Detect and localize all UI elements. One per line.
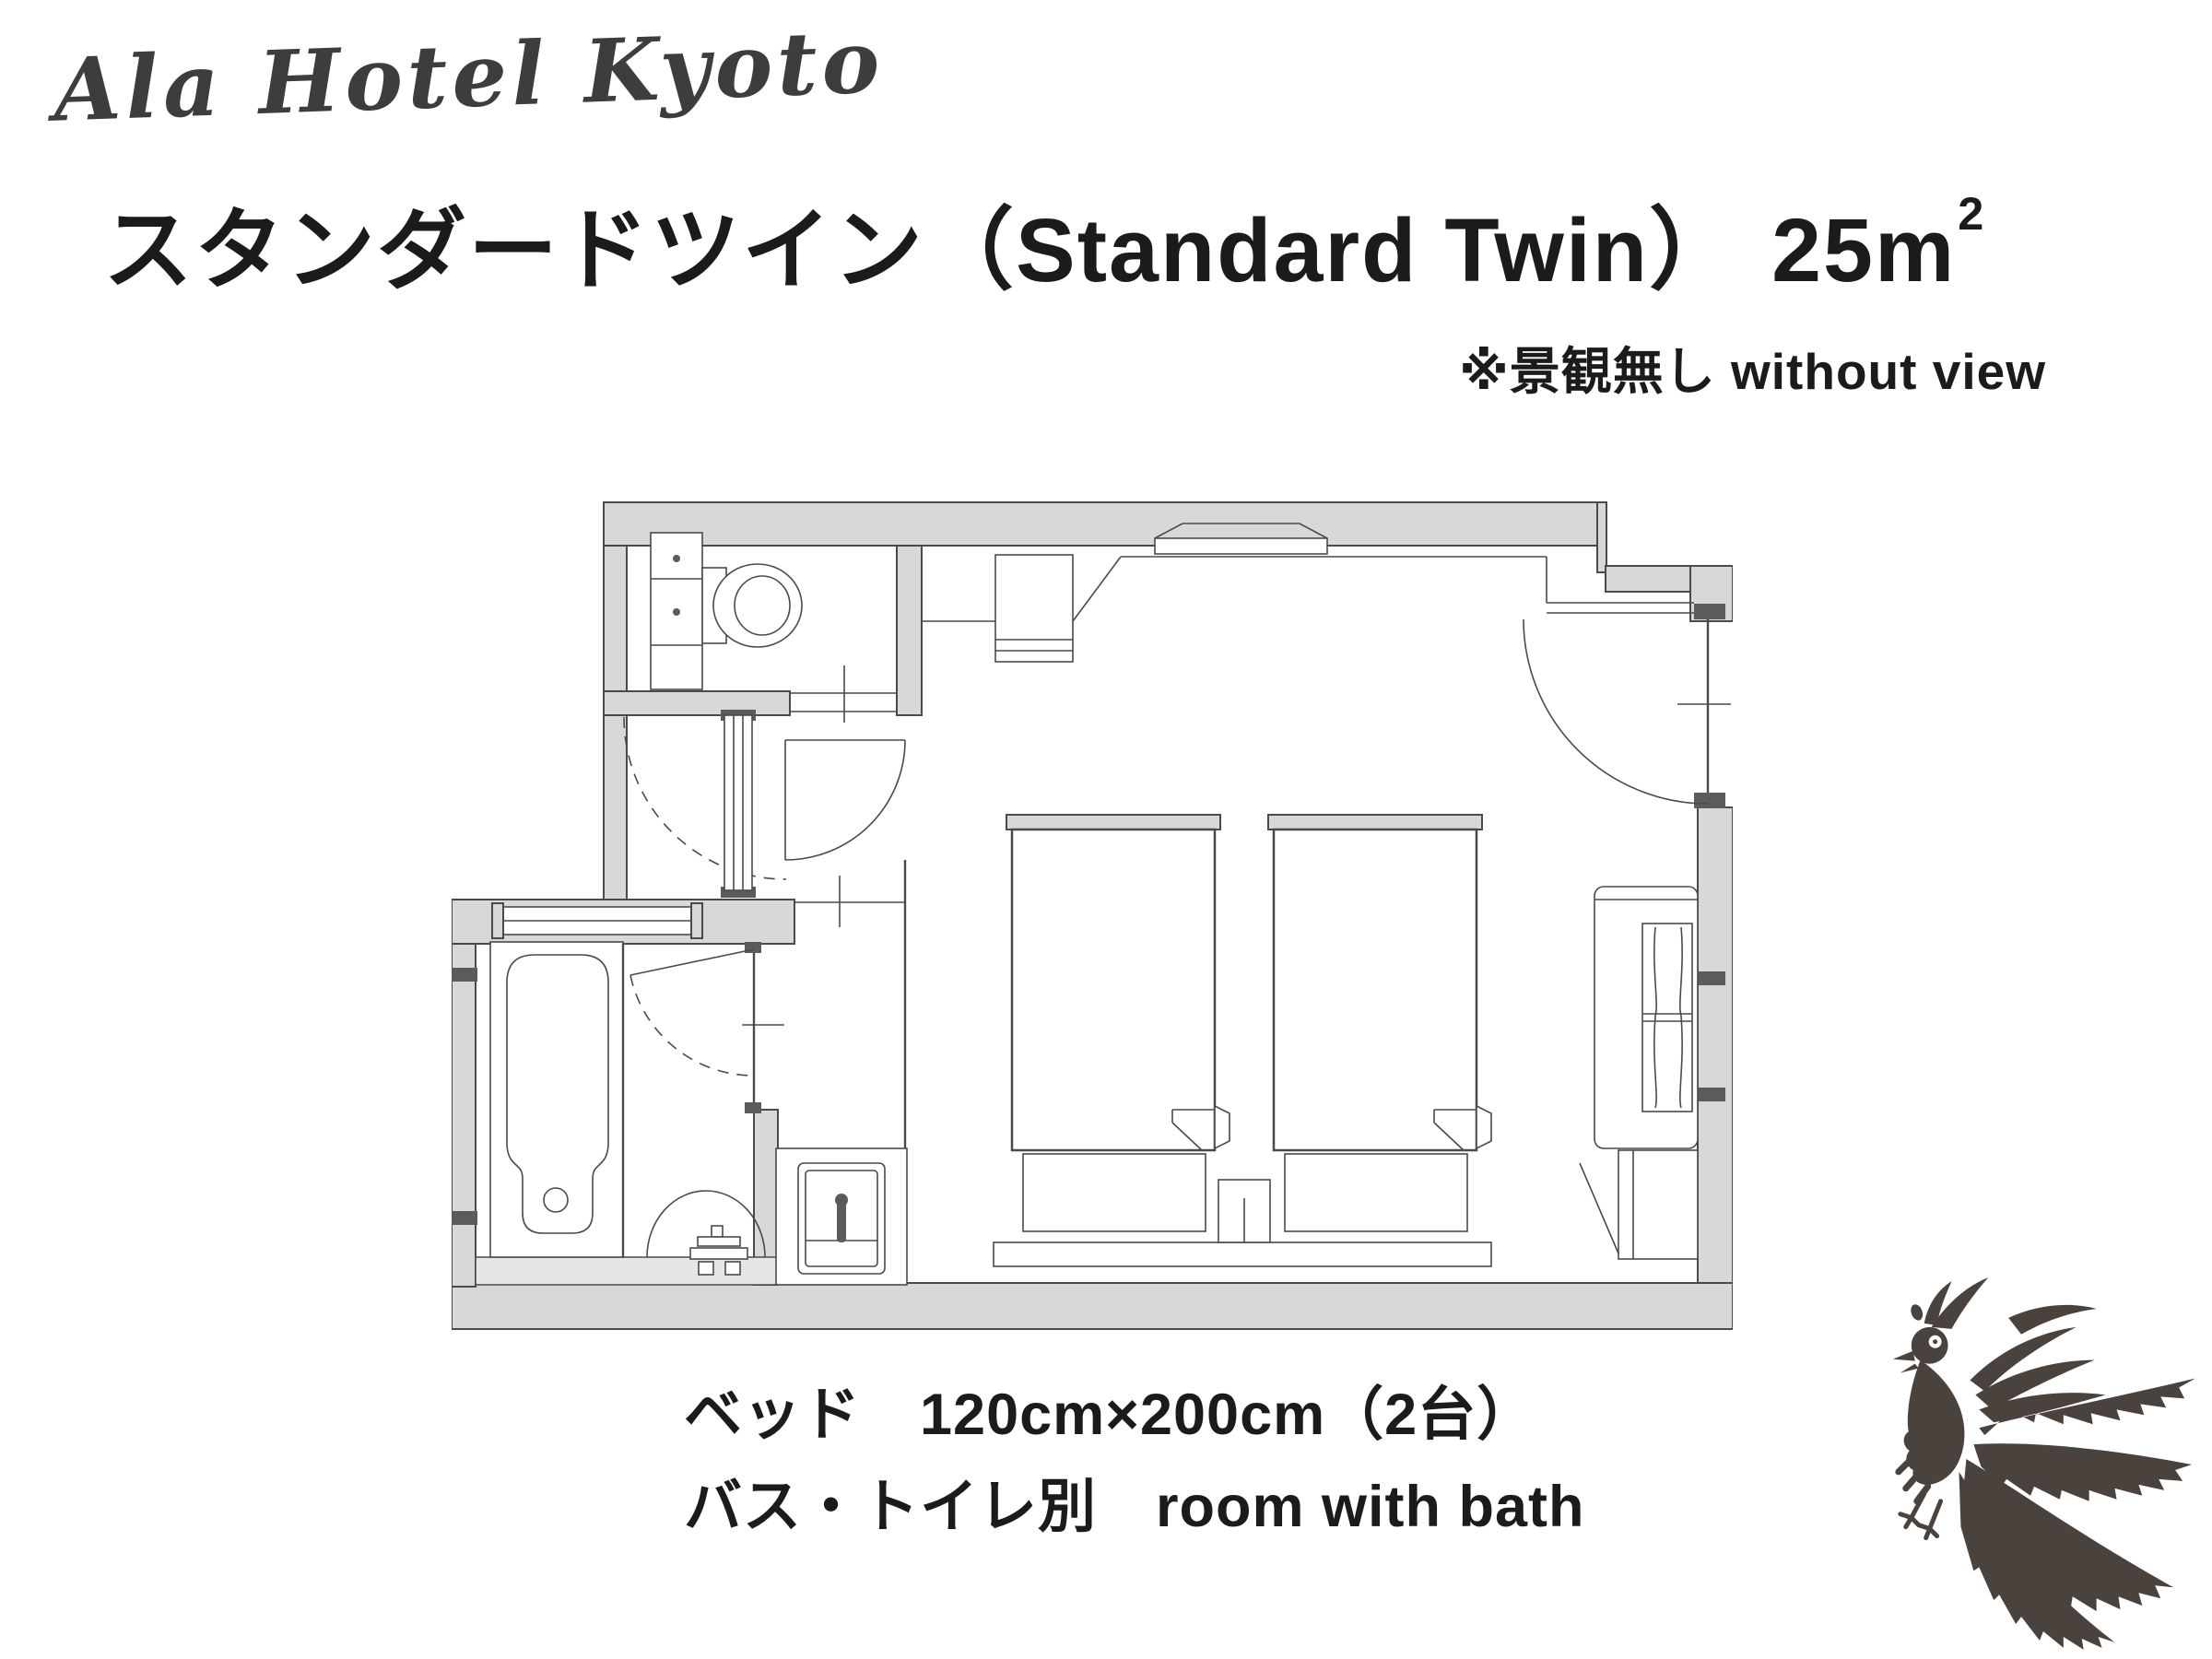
washbasin <box>776 1148 907 1285</box>
title-room-en: （Standard Twin） <box>924 200 1740 300</box>
window-bar <box>492 903 702 938</box>
title-room-jp: スタンダードツイン <box>103 200 924 300</box>
beds <box>994 815 1491 1266</box>
bathroom <box>490 903 784 1275</box>
phoenix-logo <box>1871 1270 2201 1659</box>
bed-base <box>994 1242 1491 1266</box>
luggage-cabinet <box>1580 887 1698 1259</box>
bed-spec: ベッド 120cm×200cm（2台） <box>684 1368 1535 1452</box>
sliding-door-track <box>724 715 752 890</box>
bathroom-door <box>630 942 784 1113</box>
view-note: ※景観無し without view <box>1459 330 2046 404</box>
phoenix-bird <box>1893 1277 2195 1650</box>
page-title: スタンダードツイン（Standard Twin）25m2 <box>103 177 1985 307</box>
hotel-logo: Ala Hotel Kyoto <box>52 11 886 141</box>
floor-plan <box>452 498 1733 1332</box>
area-exponent: 2 <box>1958 187 1985 240</box>
twin-bed-1 <box>1006 815 1230 1231</box>
toilet <box>651 533 802 689</box>
chair <box>995 555 1073 662</box>
title-area: 25m2 <box>1771 200 1985 300</box>
bathtub <box>490 942 623 1257</box>
bath-spec: バス・トイレ別 room with bath <box>684 1460 1584 1544</box>
entry-door <box>1524 603 1731 804</box>
twin-bed-2 <box>1268 815 1491 1231</box>
bed-pedestal <box>1218 1180 1270 1242</box>
